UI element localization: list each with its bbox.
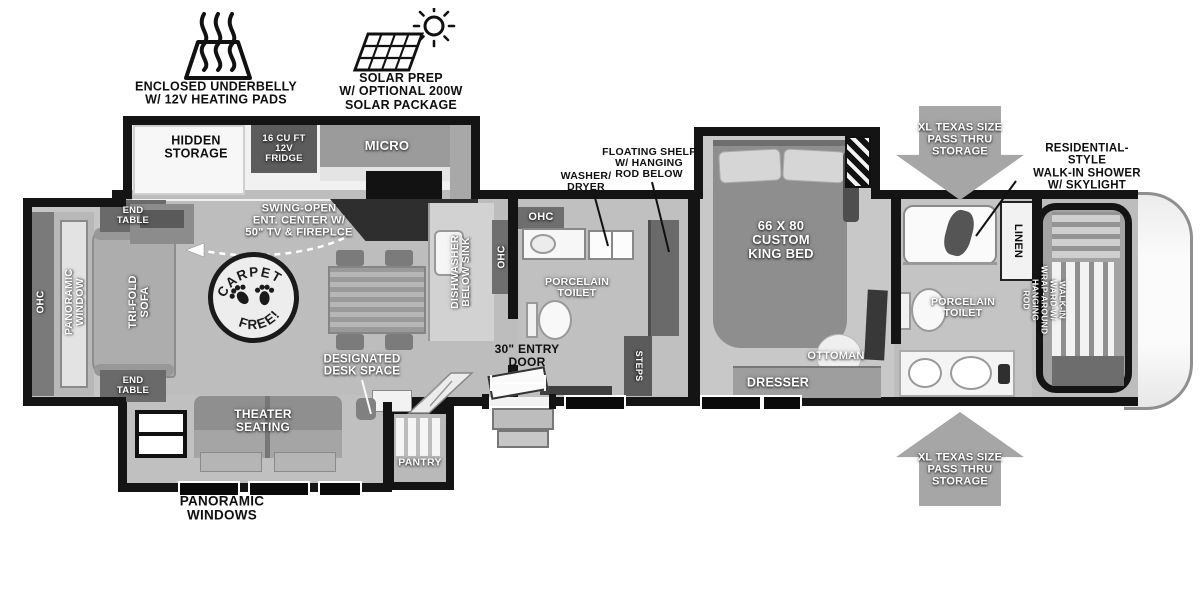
wardrobe-shelves [1052, 212, 1120, 258]
theater-footrest [274, 452, 336, 472]
bedroom-tv [864, 290, 888, 361]
window-strip [762, 395, 802, 411]
dining-chair [336, 250, 364, 266]
entry-step [492, 408, 554, 430]
dining-chair [385, 250, 413, 266]
desk-label: DESIGNATED DESK SPACE [323, 354, 400, 379]
desk [372, 390, 412, 412]
underbelly-label: ENCLOSED UNDERBELLY W/ 12V HEATING PADS [135, 81, 297, 108]
bed-pillow [718, 148, 782, 183]
range [366, 171, 442, 199]
rear-slide-wall-top [23, 198, 126, 207]
kitchen-slide-wall-left [123, 116, 132, 199]
dining-chair [385, 334, 413, 350]
mid-bath-ohc-label: OHC [528, 212, 553, 224]
kitchen-slide-end [450, 125, 471, 201]
panoramic-windows-label: PANORAMIC WINDOWS [180, 495, 265, 524]
bed-slide-window [845, 136, 871, 188]
theater-slide-wall-left [118, 402, 127, 492]
ottoman-label: OTTOMAN [807, 351, 864, 363]
mid-bath-wall-left-upper [508, 199, 518, 319]
slide-window-strip [318, 481, 362, 497]
window-strip [700, 395, 762, 411]
rv-floorplan-canvas: ENCLOSED UNDERBELLY W/ 12V HEATING PADS … [0, 0, 1200, 600]
bed-pillow [782, 148, 846, 183]
dresser-label: DRESSER [747, 376, 809, 389]
solar-prep-label: SOLAR PREP W/ OPTIONAL 200W SOLAR PACKAG… [339, 72, 462, 112]
wardrobe-label: WALK-IN WARD W/ WRAP-AROUND HANGING ROD [1021, 266, 1066, 335]
trifold-sofa-label: TRI-FOLD SOFA [128, 275, 152, 328]
shower-glass [903, 262, 997, 265]
dishwasher-label: DISHWASHER BELOW SINK [450, 235, 472, 309]
end-table-bottom-label: END TABLE [117, 376, 149, 396]
swing-open-label: SWING-OPEN ENT. CENTER W/ 50" TV & FIREP… [245, 203, 352, 238]
shower-label: RESIDENTIAL-STYLE WALK-IN SHOWER W/ SKYL… [1031, 142, 1144, 191]
steps-label: STEPS [633, 351, 643, 382]
wardrobe-bench [1052, 356, 1124, 386]
pass-thru-top-label: XL TEXAS SIZE PASS THRU STORAGE [918, 122, 1002, 157]
panoramic-window-label: PANORAMIC WINDOW [64, 269, 86, 335]
floating-shelf-label: FLOATING SHELF W/ HANGING ROD BELOW [602, 147, 696, 181]
fridge-label: 16 CU FT 12V FRIDGE [262, 134, 305, 164]
theater-label: THEATER SEATING [234, 408, 292, 434]
bed-slide-wall-top [694, 127, 880, 136]
desk-chair [356, 398, 376, 420]
king-bed-label: 66 X 80 CUSTOM KING BED [748, 219, 814, 261]
carpet-free-badge: CARPET FREE! [205, 249, 302, 346]
kitchen-slide-wall-top [123, 116, 480, 125]
end-table-top-label: END TABLE [117, 206, 149, 226]
mid-toilet-tank [526, 302, 538, 338]
mid-toilet-label: PORCELAIN TOILET [545, 277, 609, 299]
entry-step [497, 430, 549, 448]
bedroom-bath-wall [891, 199, 901, 344]
hidden-storage-label: HIDDEN STORAGE [164, 135, 227, 162]
door-jamb [482, 394, 489, 409]
mid-bath-wall-right [688, 199, 700, 397]
kitchen-slide-wall-right [471, 116, 480, 199]
door-jamb [549, 394, 556, 409]
solar-prep-icon [352, 8, 462, 74]
theater-slide-wall-right [383, 402, 392, 492]
theater-footrest [200, 452, 262, 472]
pass-thru-bottom-label: XL TEXAS SIZE PASS THRU STORAGE [918, 452, 1002, 487]
mid-toilet-bowl [538, 300, 572, 340]
theater-slide-window [135, 410, 187, 458]
pantry-label: PANTRY [398, 457, 442, 468]
pantry-stairs [396, 418, 444, 456]
rear-slide-wall-bottom [23, 397, 126, 406]
bath-sink-basin [530, 234, 556, 254]
micro-label: MICRO [365, 139, 410, 153]
linen-label: LINEN [1011, 224, 1023, 258]
kitchen-ohc-label: OHC [498, 246, 509, 269]
dining-chair [336, 334, 364, 350]
washer-dryer-unit [588, 230, 634, 260]
vanity-sink [950, 356, 992, 390]
rear-slide-wall-left [23, 198, 32, 406]
front-toilet-label: PORCELAIN TOILET [931, 297, 995, 319]
vanity-faucet [998, 364, 1010, 384]
bed-slide-wall-right [871, 127, 880, 199]
floating-shelf-unit [648, 220, 679, 336]
heating-pads-icon [168, 8, 268, 82]
dining-table [328, 266, 426, 334]
vanity-sink [908, 358, 942, 388]
window-strip [564, 395, 626, 411]
rear-ohc-label: OHC [37, 291, 48, 314]
entry-door-label: 30" ENTRY DOOR [495, 343, 560, 369]
